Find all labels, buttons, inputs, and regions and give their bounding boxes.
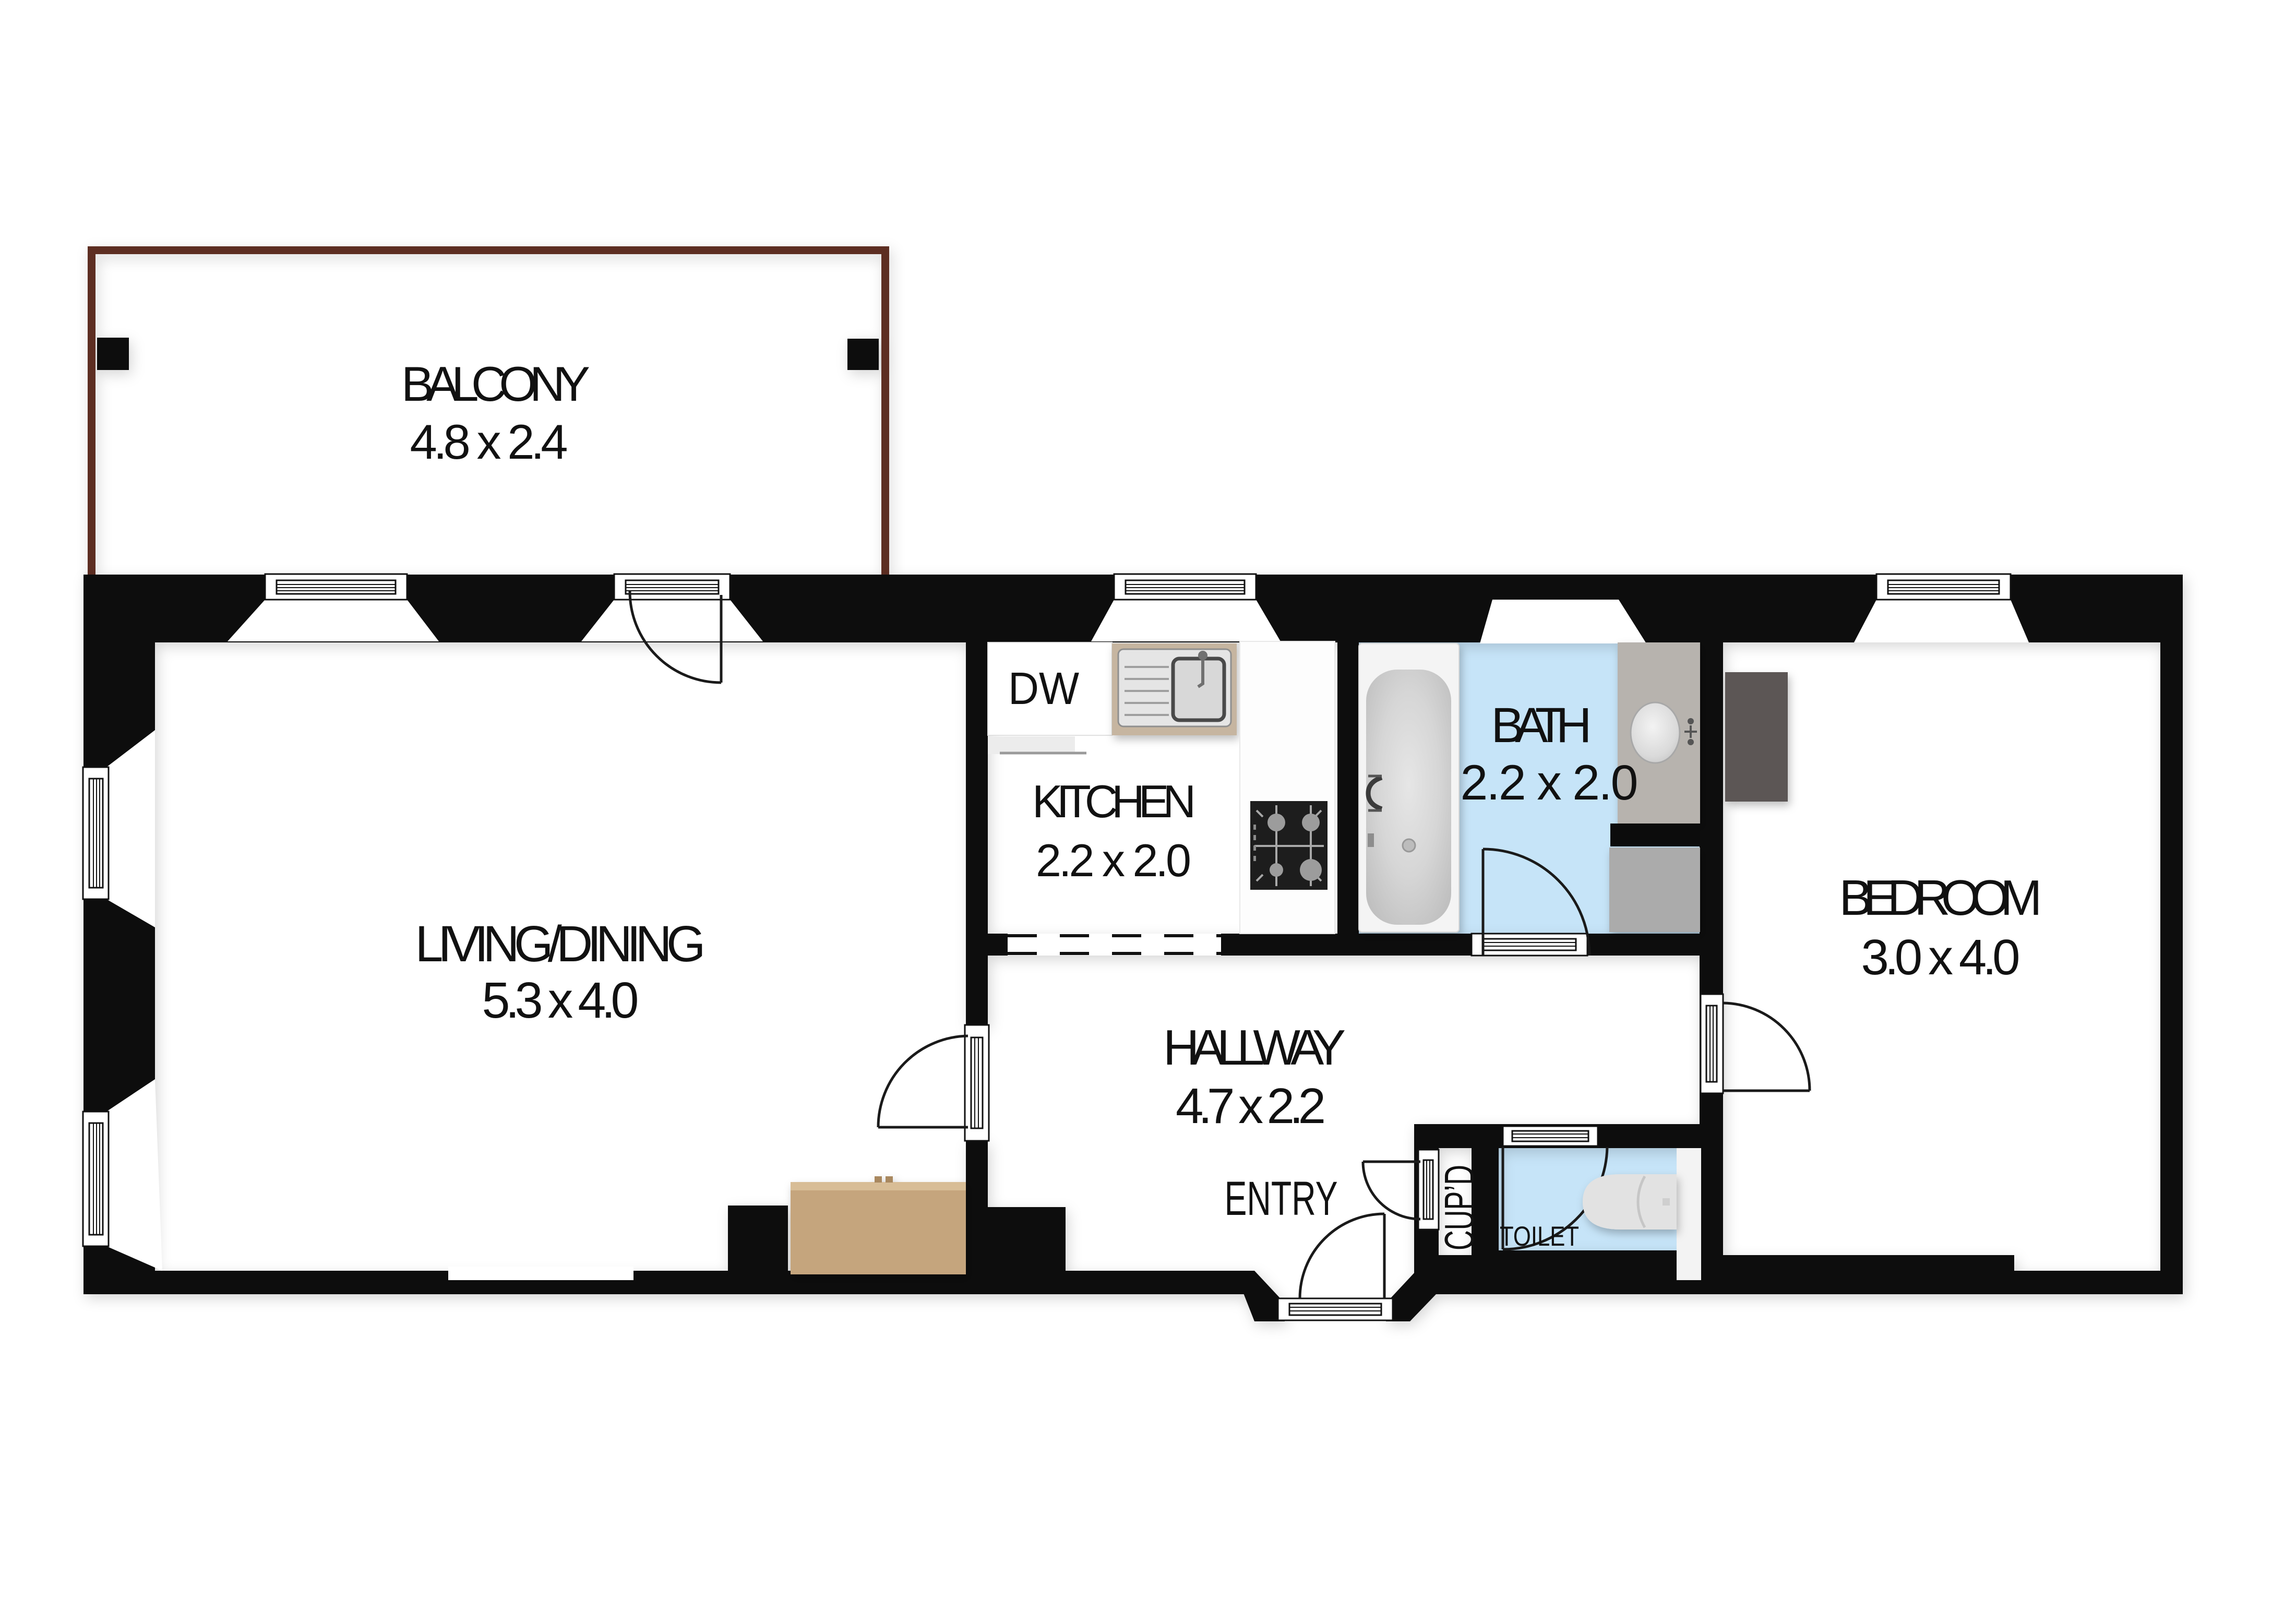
svg-text:BALCONY: BALCONY	[401, 356, 590, 411]
svg-text:2.2 x 2.0: 2.2 x 2.0	[1036, 834, 1191, 886]
svg-text:4.7 x 2.2: 4.7 x 2.2	[1176, 1078, 1326, 1134]
svg-text:LIVING/DINING: LIVING/DINING	[415, 915, 706, 972]
svg-text:BEDROOM: BEDROOM	[1839, 870, 2042, 926]
svg-text:HALLWAY: HALLWAY	[1163, 1020, 1346, 1076]
svg-text:CUP’D: CUP’D	[1436, 1165, 1482, 1250]
svg-text:3.0 x 4.0: 3.0 x 4.0	[1861, 929, 2020, 985]
svg-text:4.8 x 2.4: 4.8 x 2.4	[410, 414, 568, 469]
svg-text:DW: DW	[1008, 663, 1079, 714]
svg-text:BATH: BATH	[1491, 698, 1592, 753]
svg-text:2.2 x 2.0: 2.2 x 2.0	[1461, 755, 1639, 810]
svg-text:ENTRY: ENTRY	[1225, 1172, 1338, 1225]
svg-text:5.3 x 4.0: 5.3 x 4.0	[482, 972, 639, 1029]
svg-text:KITCHEN: KITCHEN	[1032, 775, 1196, 827]
svg-text:TOILET: TOILET	[1500, 1221, 1579, 1252]
